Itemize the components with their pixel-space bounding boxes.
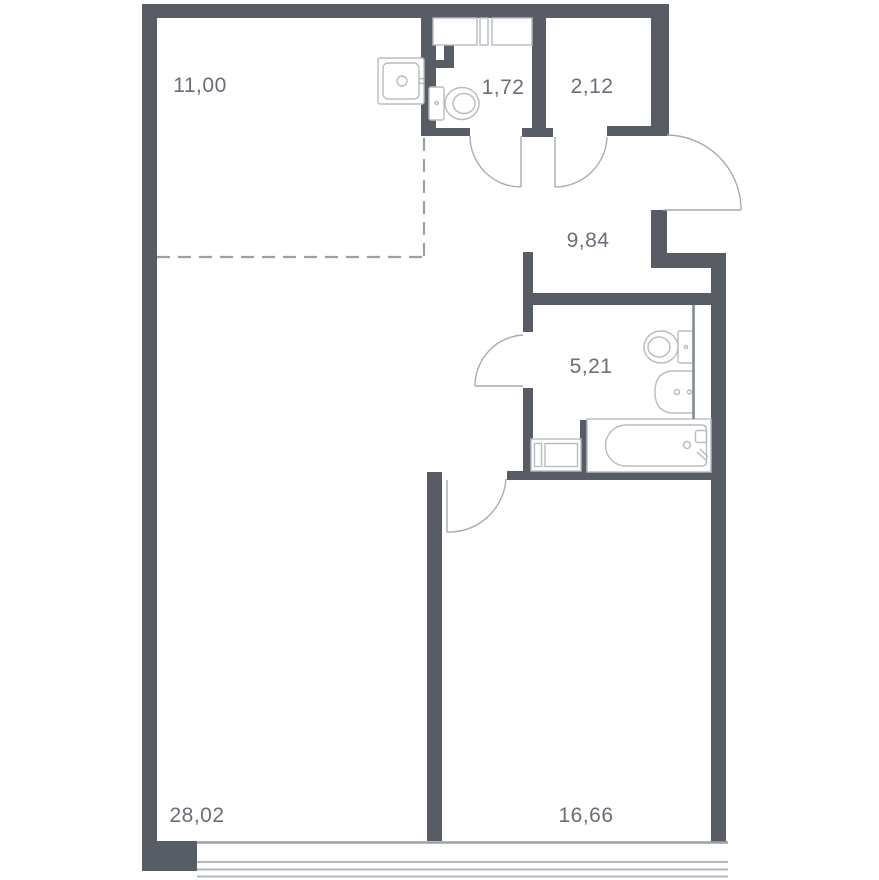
wall-left [142, 4, 157, 843]
wc-shelves [433, 18, 532, 45]
wall-bath-top [523, 293, 711, 305]
bathroom-door [475, 335, 523, 386]
bathroom-toilet-tank [678, 331, 694, 363]
storage-door-arc [555, 137, 607, 187]
bathtub [587, 419, 711, 472]
entrance-door [663, 135, 741, 210]
window-band [197, 843, 728, 877]
wc-door [470, 136, 521, 187]
wall-right-main [711, 253, 726, 843]
bathroom-toilet-bowl [644, 331, 678, 363]
bathroom-toilet [644, 331, 694, 363]
kitchen-sink [378, 58, 424, 104]
wc-toilet-bowl [445, 88, 479, 120]
wall-room-divider [427, 472, 442, 841]
wc-toilet-tank [429, 87, 444, 120]
washing-machine [531, 439, 581, 471]
wall-wc-storage [532, 4, 546, 134]
wall-storage-stub [607, 126, 669, 136]
room-label-bedroom: 16,66 [558, 804, 613, 827]
wc-shelf-2 [480, 18, 488, 45]
floor-plan: 11,00 1,72 2,12 9,84 5,21 28,02 16,66 [0, 0, 879, 880]
wall-top [142, 4, 669, 18]
floor-plan-page: 11,00 1,72 2,12 9,84 5,21 28,02 16,66 [0, 0, 879, 880]
bathroom-door-arc [475, 335, 523, 386]
room-label-hallway: 9,84 [567, 229, 610, 252]
room-label-living: 28,02 [169, 804, 224, 827]
wc-door-arc [470, 136, 521, 187]
zone-boundary [157, 138, 424, 257]
wall-bath-left-upper [523, 252, 533, 332]
wall-wc-stub-left [421, 128, 470, 136]
room-label-wc: 1,72 [482, 76, 525, 99]
room-label-kitchen: 11,00 [173, 74, 227, 97]
wc-toilet [429, 87, 479, 120]
wc-shelf-1 [433, 18, 477, 45]
entrance-door-arc [667, 135, 741, 206]
wall-corner-block [142, 841, 197, 871]
storage-door [555, 137, 607, 187]
wall-wc-pillar-b [429, 60, 454, 68]
bedroom-door [447, 479, 506, 532]
wall-right-top [651, 4, 669, 135]
room-label-bathroom: 5,21 [570, 355, 613, 378]
bedroom-door-arc [447, 479, 506, 532]
wc-shelf-3 [492, 18, 532, 45]
wall-wc-stub-right [522, 128, 553, 137]
bathroom-sink [655, 371, 694, 413]
room-label-storage: 2,12 [571, 75, 614, 98]
